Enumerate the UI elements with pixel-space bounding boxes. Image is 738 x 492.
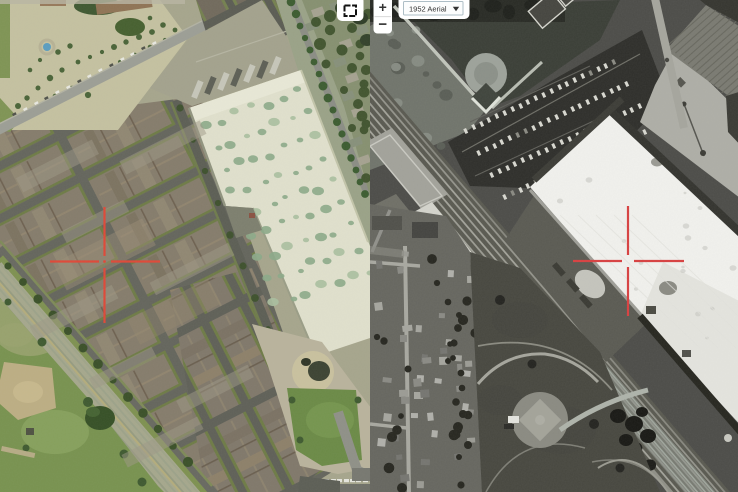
svg-text:−: − xyxy=(378,16,387,33)
svg-text:1952 Aerial: 1952 Aerial xyxy=(409,5,447,14)
svg-text:+: + xyxy=(379,0,387,15)
